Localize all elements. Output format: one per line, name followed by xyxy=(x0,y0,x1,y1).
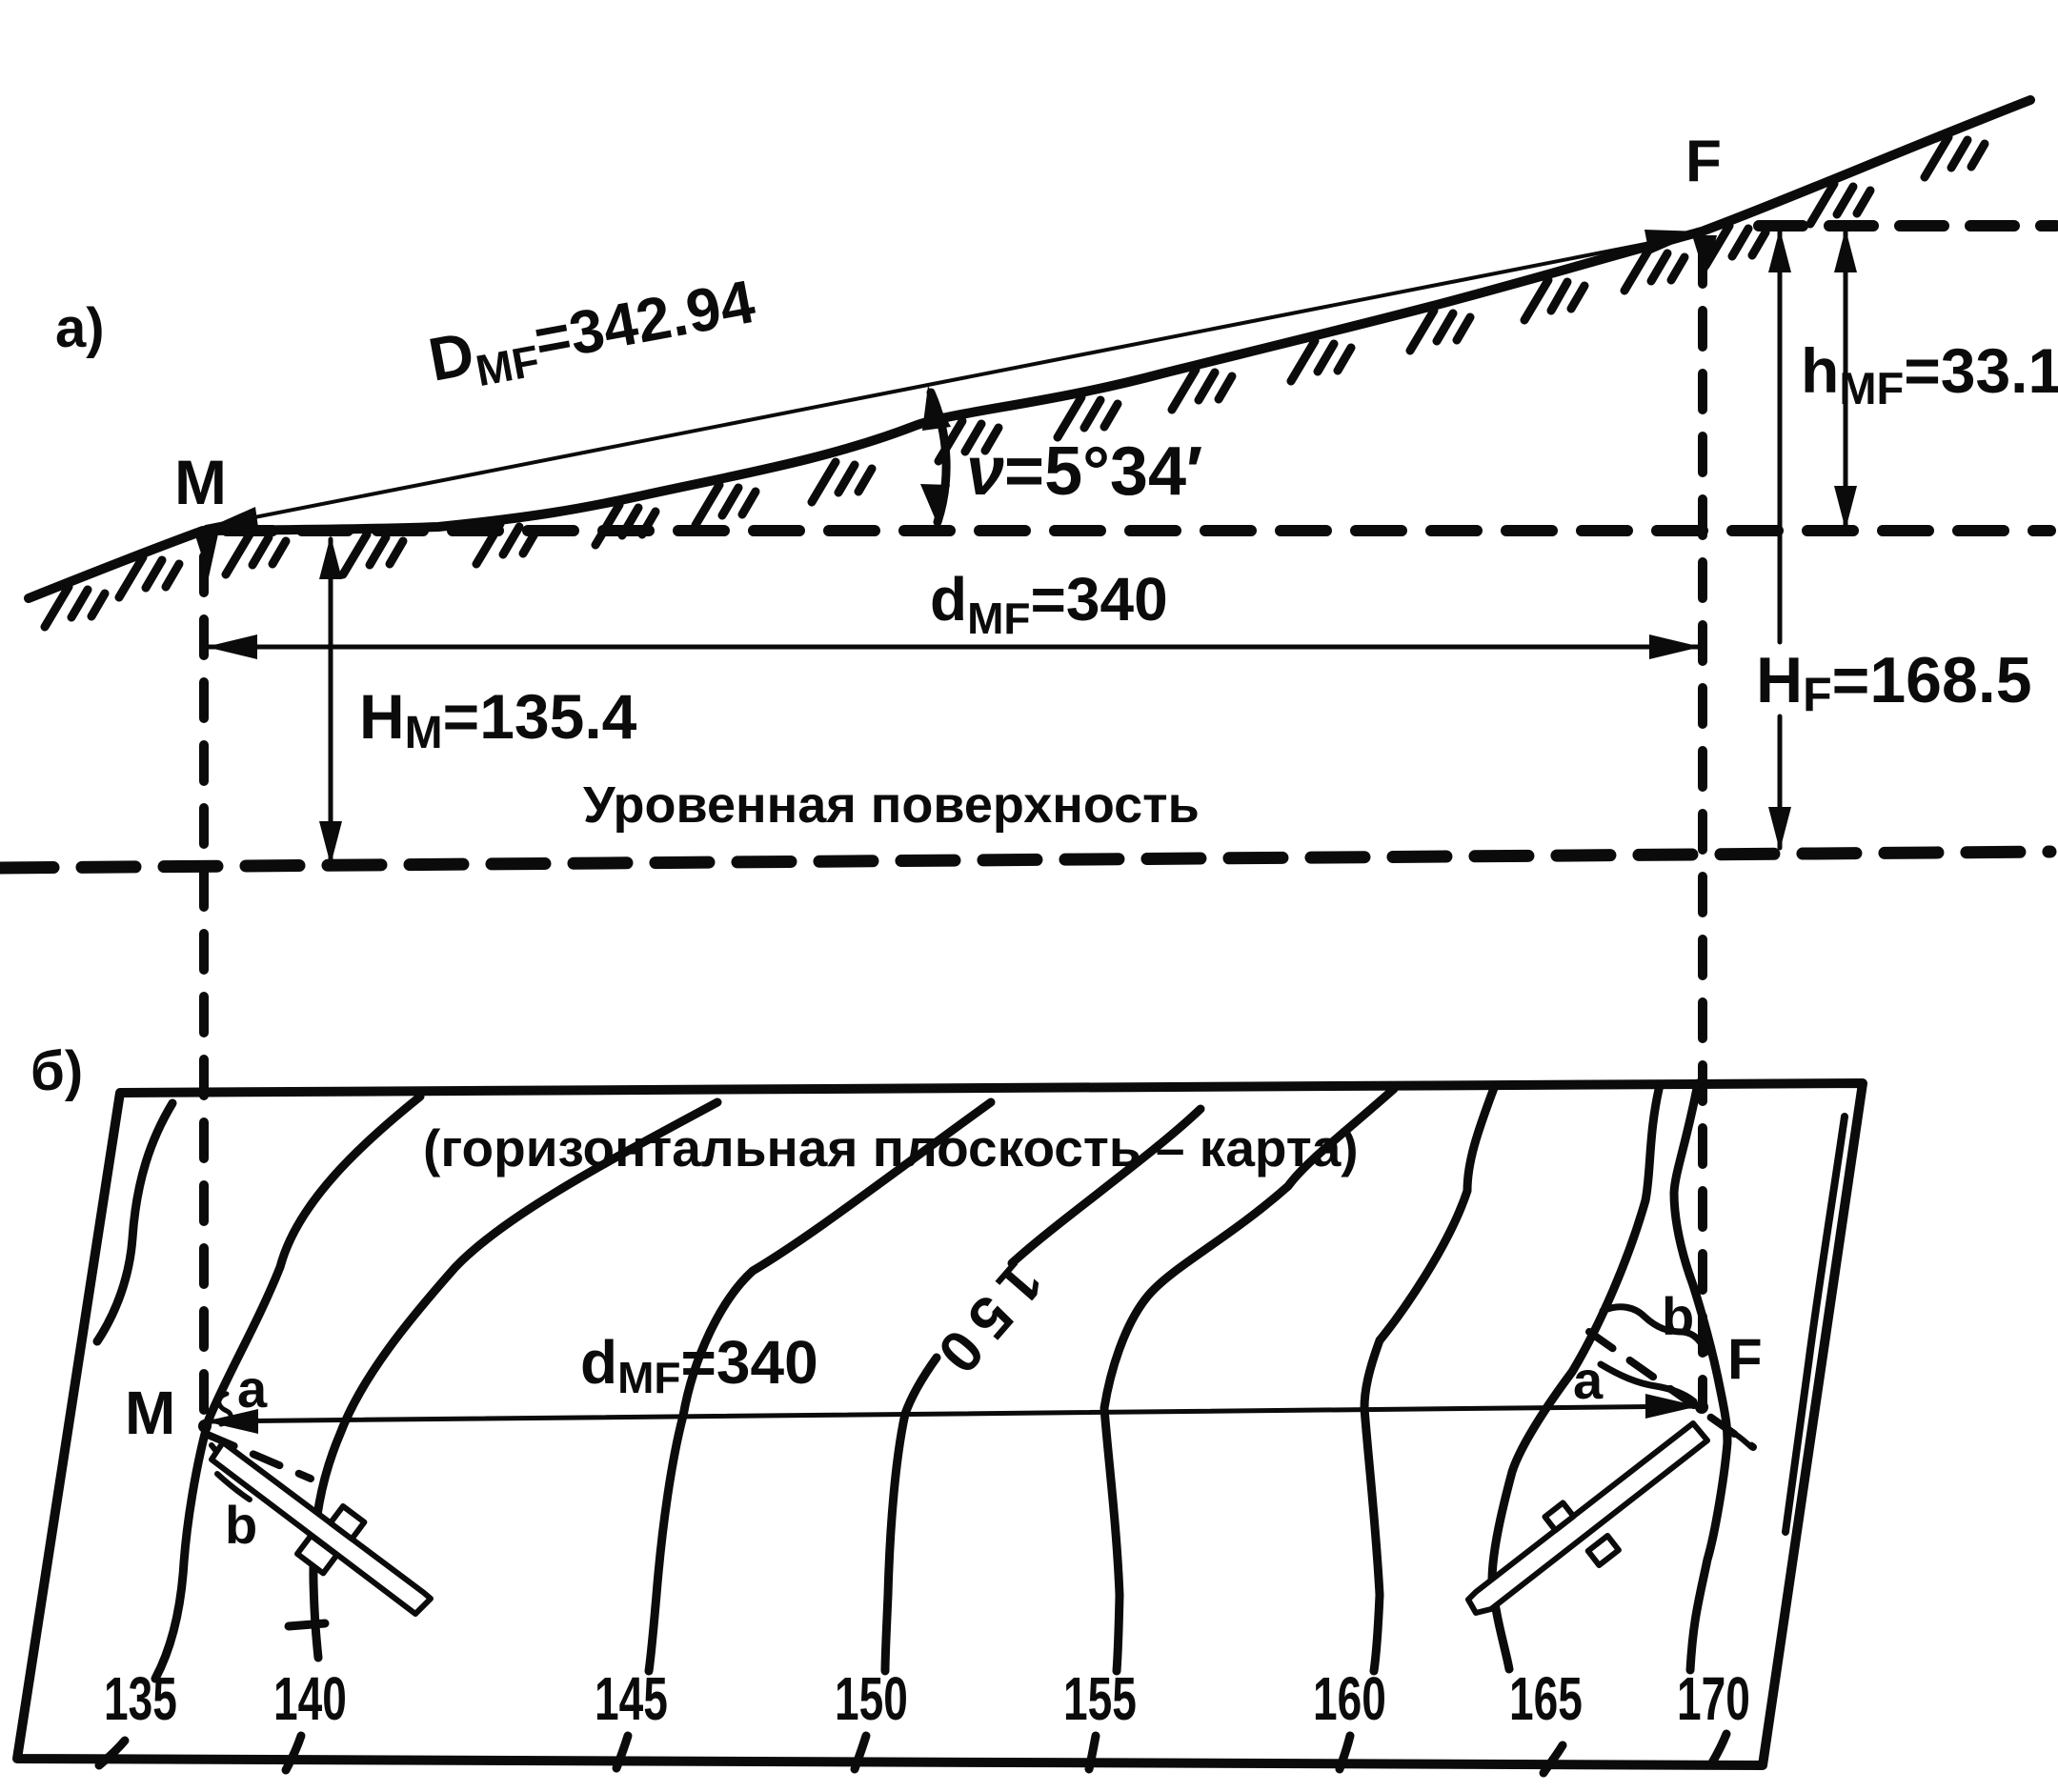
svg-text:165: 165 xyxy=(1509,1665,1583,1733)
svg-text:170: 170 xyxy=(1677,1665,1750,1733)
svg-text:a: a xyxy=(1573,1350,1604,1410)
svg-text:b: b xyxy=(225,1495,257,1555)
svg-text:ν=5°34′: ν=5°34′ xyxy=(966,433,1202,510)
svg-text:F: F xyxy=(1685,129,1722,194)
svg-text:dMF=340: dMF=340 xyxy=(930,565,1168,643)
svg-text:б): б) xyxy=(30,1040,83,1102)
svg-text:HF=168.5: HF=168.5 xyxy=(1756,644,2032,721)
svg-text:160: 160 xyxy=(1313,1665,1386,1733)
svg-text:155: 155 xyxy=(1063,1665,1137,1733)
svg-text:Уровенная поверхность: Уровенная поверхность xyxy=(583,776,1200,834)
svg-text:a): a) xyxy=(55,297,105,359)
svg-text:b: b xyxy=(1662,1286,1694,1346)
svg-text:F: F xyxy=(1727,1327,1763,1391)
svg-text:dMF=340: dMF=340 xyxy=(580,1328,818,1402)
svg-text:140: 140 xyxy=(273,1665,347,1733)
svg-text:(горизонтальная плоскость – ка: (горизонтальная плоскость – карта) xyxy=(423,1118,1359,1178)
svg-text:150: 150 xyxy=(835,1665,908,1733)
svg-text:HM=135.4: HM=135.4 xyxy=(359,681,637,758)
svg-text:M: M xyxy=(174,447,227,517)
svg-text:135: 135 xyxy=(104,1665,177,1733)
svg-text:M: M xyxy=(125,1379,175,1447)
svg-text:145: 145 xyxy=(595,1665,668,1733)
svg-text:a: a xyxy=(237,1359,268,1419)
